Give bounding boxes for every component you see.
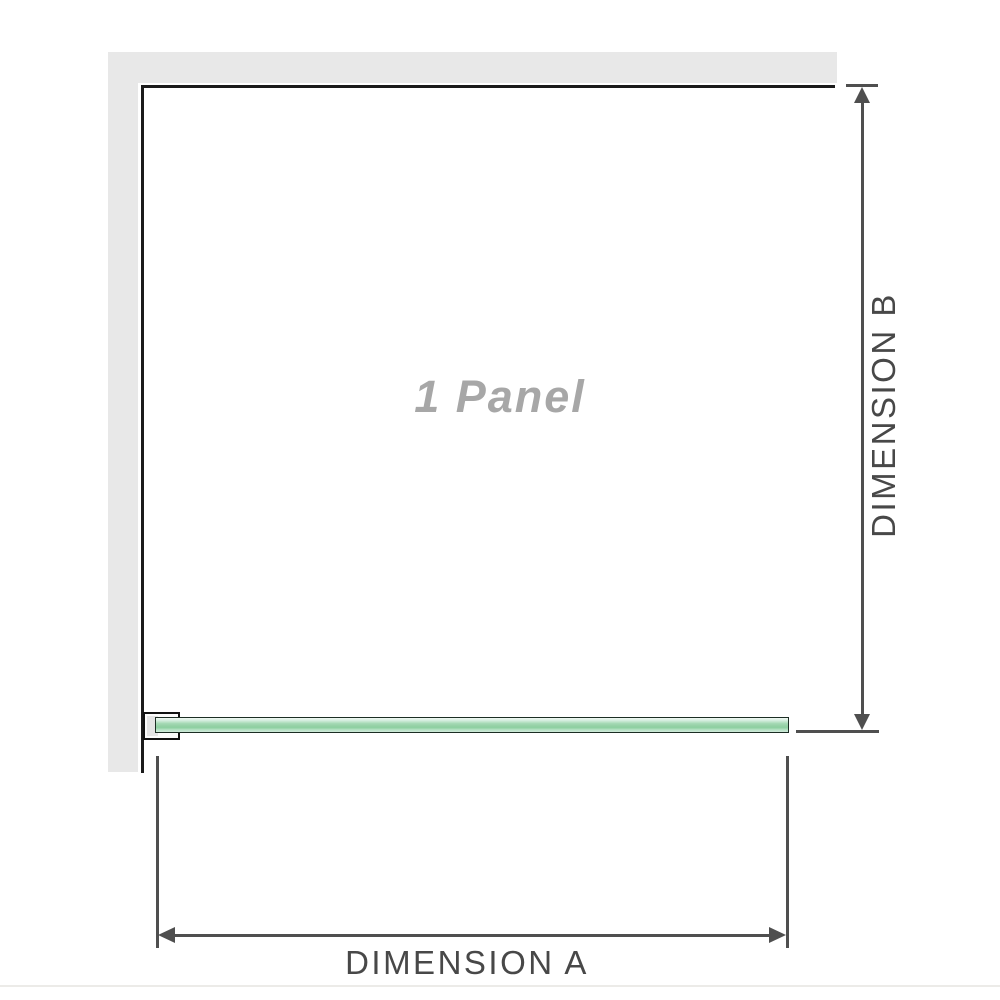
screen-frame-top-line [141,85,835,88]
diagram-canvas: 1 Panel DIMENSION B DIMENSION A [0,0,1000,1000]
dimension-b-line [861,101,864,716]
page-bottom-divider [0,985,1000,987]
panel-count-label: 1 Panel [414,371,586,423]
extension-line-right [786,756,789,948]
dimension-a-label: DIMENSION A [345,944,589,982]
wall-left-segment [108,52,138,772]
glass-panel-bar [155,717,789,733]
extension-line-left [156,756,159,948]
dimension-b-label: DIMENSION B [865,292,903,538]
arrow-up-icon [854,87,870,103]
dimension-a-line [170,934,775,937]
arrow-right-icon [769,927,786,943]
dimension-b-bottom-tick [796,730,879,733]
wall-top-segment [108,52,837,83]
arrow-down-icon [854,714,870,730]
screen-frame-left-line [141,85,144,773]
arrow-left-icon [158,927,175,943]
